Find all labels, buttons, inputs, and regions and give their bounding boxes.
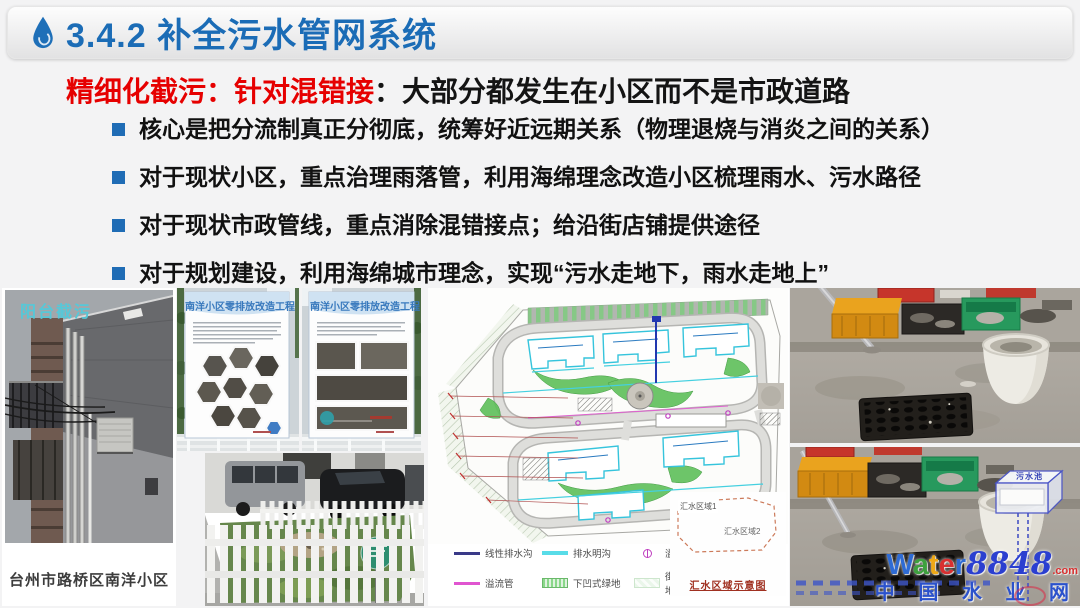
intro-highlight: 精细化截污：针对混错接: [66, 76, 374, 107]
legend-item: 排水明沟: [542, 546, 634, 560]
central-plaza: [627, 383, 653, 409]
bullet-item: 对于规划建设，利用海绵城市理念，实现“污水走地下，雨水走地上”: [112, 258, 944, 289]
signboard-title: 南洋小区零排放改造工程: [185, 298, 291, 313]
bullet-square-icon: [112, 171, 125, 184]
photo-caption: 台州市路桥区南洋小区: [2, 569, 176, 590]
grate-top-illustration: [790, 288, 1080, 443]
photo-drain-grate-bottom: 污水池: [790, 447, 1080, 606]
slide: 3.4.2 补全污水管网系统 精细化截污：针对混错接：大部分都发生在小区而不是市…: [0, 0, 1080, 608]
photo-parking-greenpatch: [205, 453, 424, 606]
catchment-area1-label: 汇水区域1: [678, 500, 718, 513]
legend-label: 线性排水沟: [485, 546, 533, 560]
legend-line-swatch: [454, 552, 480, 555]
photo-signboard-1: 南洋小区零排放改造工程: [177, 288, 299, 451]
legend-item: 溢流管: [454, 576, 542, 590]
catchment-area2-label: 汇水区域2: [724, 526, 760, 537]
bullet-square-icon: [112, 219, 125, 232]
catchment-inset: 汇水区域1 汇水区域2 汇水区域示意图: [670, 492, 786, 596]
back-fence: [260, 501, 424, 529]
right-intersection: [758, 383, 784, 409]
ac-unit: [97, 418, 133, 453]
bullet-square-icon: [112, 123, 125, 136]
drain-grate: [859, 393, 973, 441]
intro-line: 精细化截污：针对混错接：大部分都发生在小区而不是市政道路: [66, 70, 850, 110]
signboard-title: 南洋小区零排放改造工程: [310, 298, 413, 313]
balcony-label: 阳台截污: [20, 298, 92, 322]
parking-illustration: [205, 453, 424, 606]
balcony-photo-illustration: [5, 290, 173, 543]
site-plan-drawing: 线性排水沟 排水明沟 溢流井 溢流管 下凹式绿地 街旁绿地 汇流方向 出水口 汇…: [428, 288, 789, 606]
bullet-item: 对于现状市政管线，重点消除混错接点；给沿街店铺提供途径: [112, 210, 944, 241]
bullet-item: 对于现状小区，重点治理雨落管，利用海绵理念改造小区梳理雨水、污水路径: [112, 162, 944, 193]
siteplan-legend: 线性排水沟 排水明沟 溢流井 溢流管 下凹式绿地 街旁绿地 汇流方向 出水口: [454, 546, 699, 608]
legend-label: 溢流管: [485, 576, 514, 590]
legend-line-swatch: [542, 551, 568, 555]
bullet-text: 对于规划建设，利用海绵城市理念，实现“污水走地下，雨水走地上”: [139, 258, 829, 289]
bullet-list: 核心是把分流制真正分彻底，统筹好近远期关系（物理退烧与消炎之间的关系） 对于现状…: [112, 114, 944, 306]
legend-well-icon: [643, 549, 652, 558]
legend-swatch: [542, 578, 568, 588]
page-title: 3.4.2 补全污水管网系统: [66, 8, 437, 57]
intro-rest: ：大部分都发生在小区而不是市政道路: [374, 76, 850, 107]
bullet-text: 对于现状市政管线，重点消除混错接点；给沿街店铺提供途径: [139, 210, 760, 241]
slide-header: 3.4.2 补全污水管网系统: [7, 6, 1073, 59]
bullet-text: 对于现状小区，重点治理雨落管，利用海绵理念改造小区梳理雨水、污水路径: [139, 162, 921, 193]
legend-label: 排水明沟: [573, 546, 611, 560]
water-drop-icon: [30, 15, 56, 51]
sewage-tank-label: 污水池: [1016, 471, 1043, 482]
legend-item: 下凹式绿地: [542, 576, 634, 590]
bullet-text: 核心是把分流制真正分彻底，统筹好近远期关系（物理退烧与消炎之间的关系）: [139, 114, 944, 145]
legend-label: 下凹式绿地: [573, 576, 621, 590]
legend-line-swatch: [454, 582, 480, 585]
photo-drain-grate-top: [790, 288, 1080, 443]
bullet-square-icon: [112, 267, 125, 280]
bullet-item: 核心是把分流制真正分彻底，统筹好近远期关系（物理退烧与消炎之间的关系）: [112, 114, 944, 145]
photo-balcony-interception: 阳台截污 台州市路桥区南洋小区: [2, 288, 176, 606]
legend-item: 线性排水沟: [454, 546, 542, 560]
photo-signboard-2: 南洋小区零排放改造工程: [302, 288, 421, 451]
legend-swatch: [634, 578, 660, 588]
front-fence: [205, 525, 424, 603]
catchment-caption: 汇水区域示意图: [670, 577, 786, 592]
